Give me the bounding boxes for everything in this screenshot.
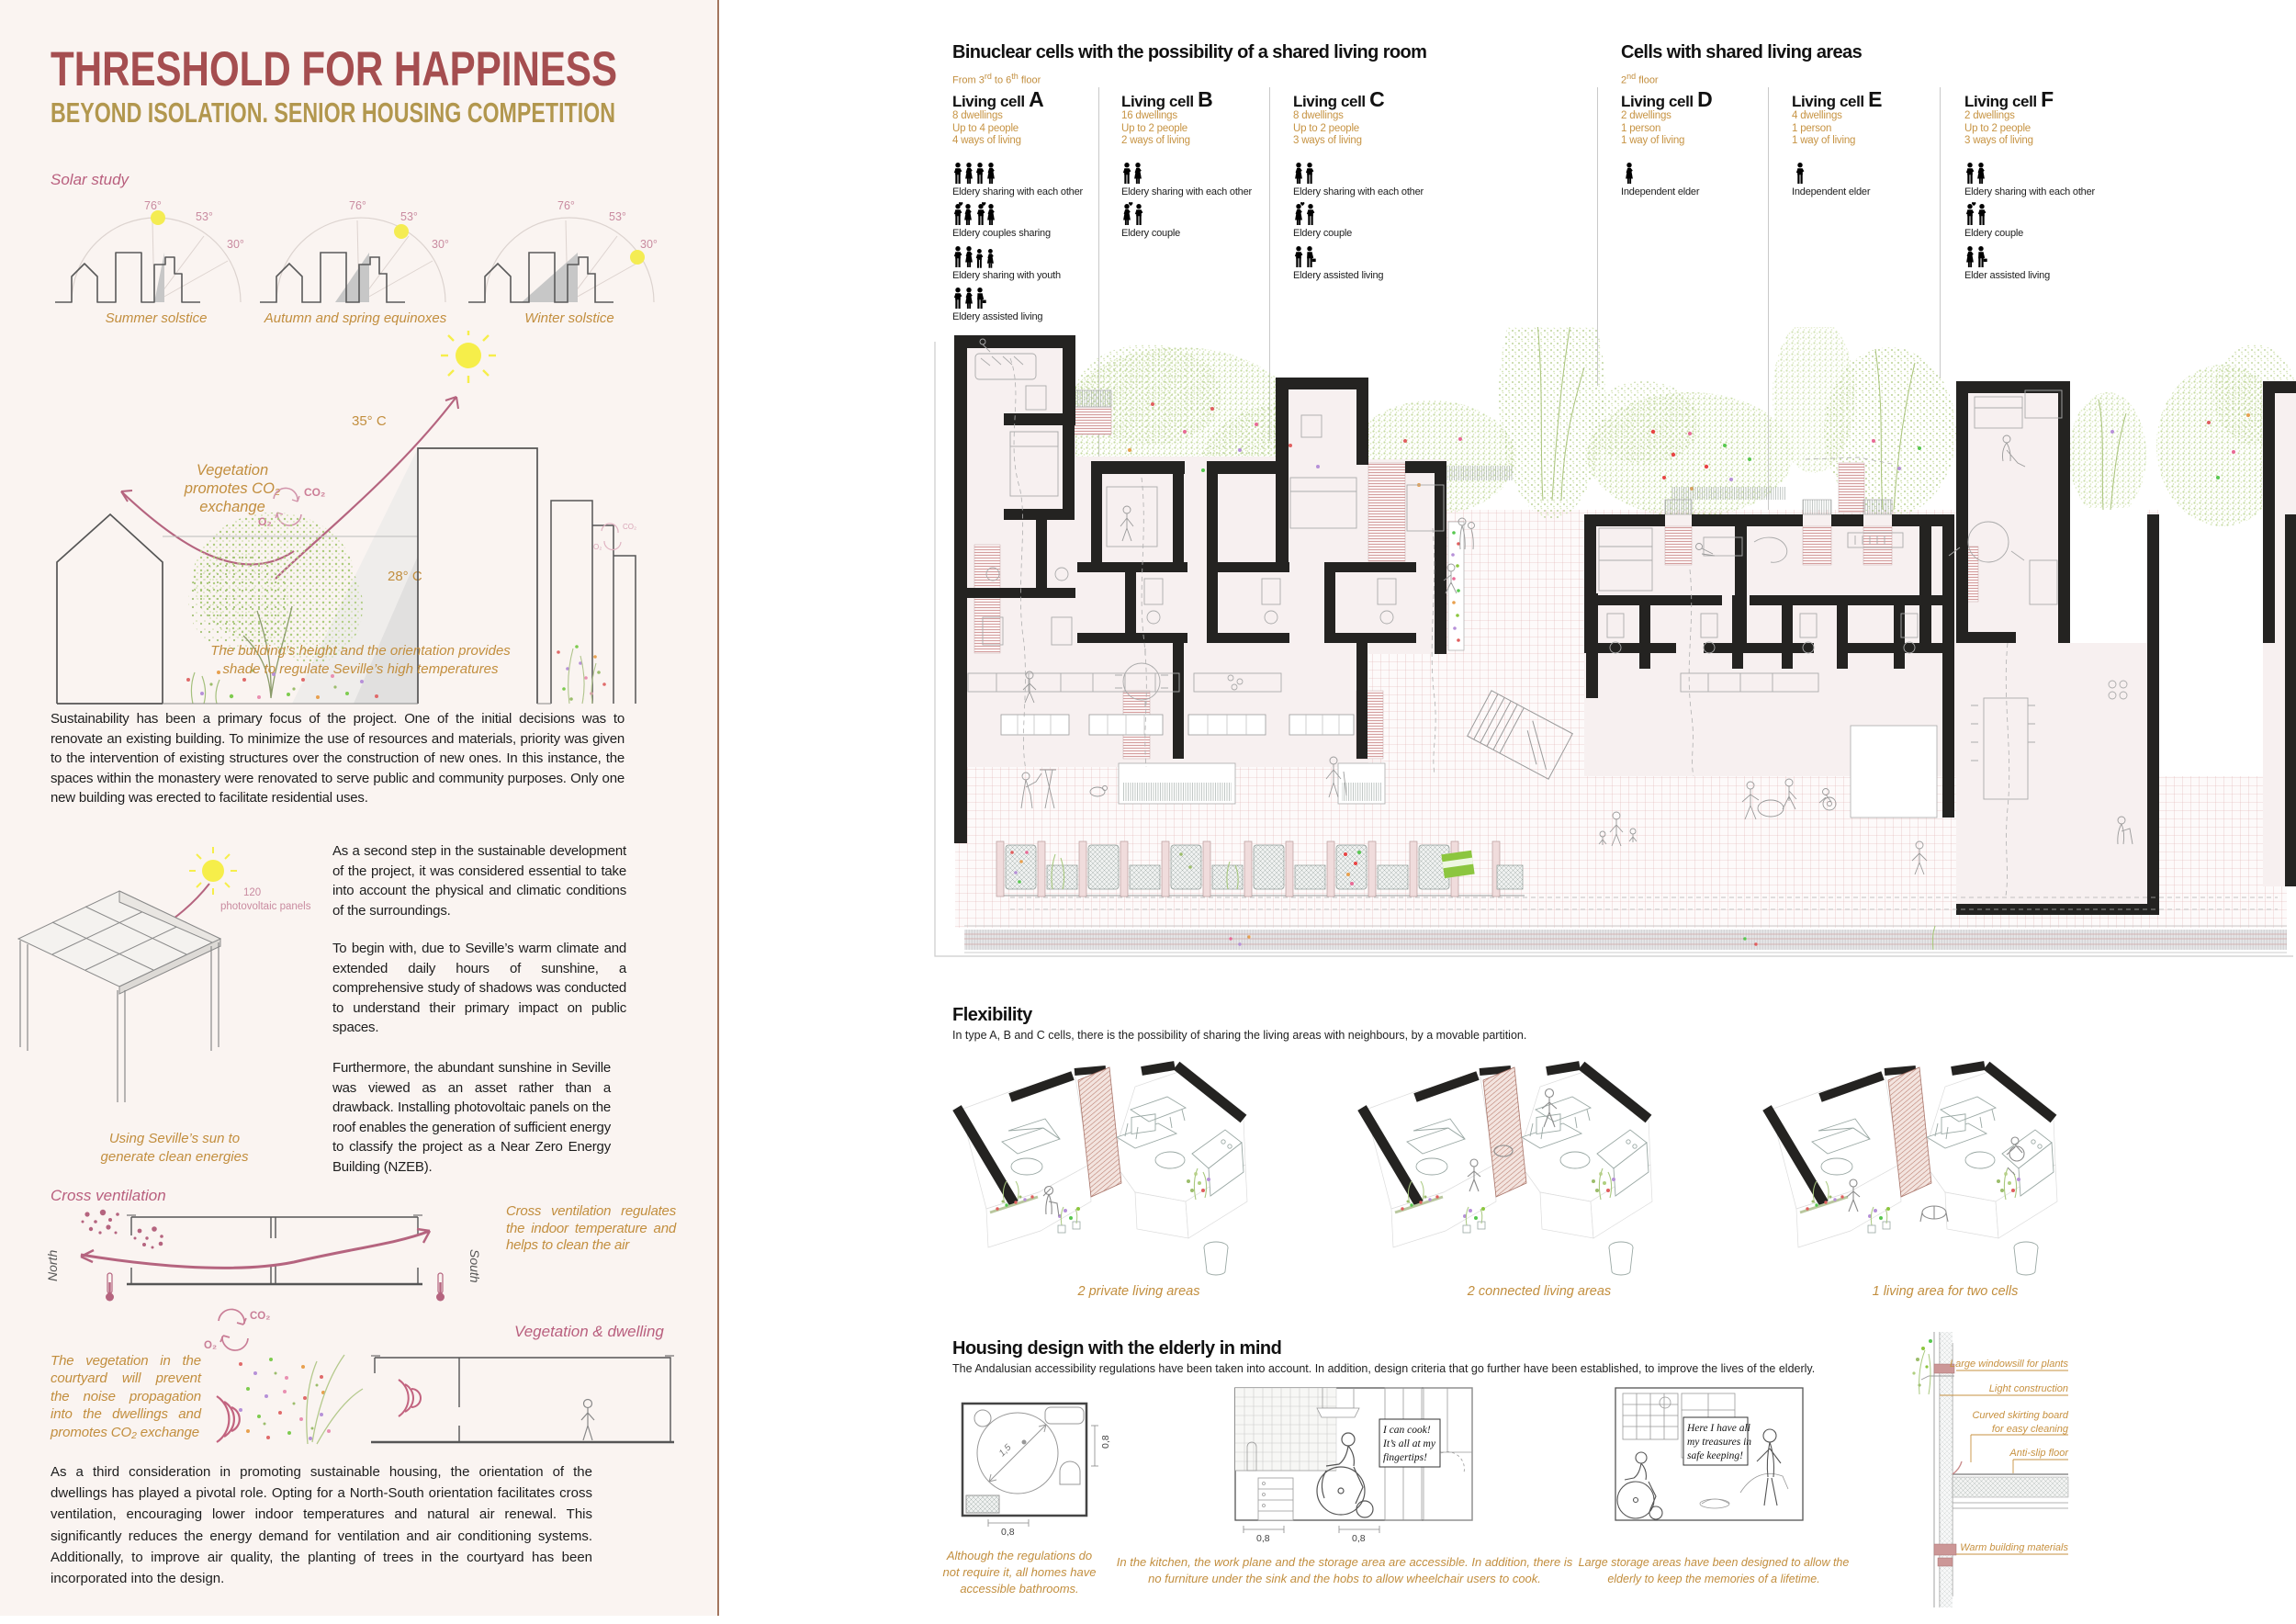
svg-text:76°: 76° xyxy=(557,199,575,212)
svg-text:exchange: exchange xyxy=(199,499,265,515)
svg-text:fingertips!: fingertips! xyxy=(1383,1452,1427,1463)
svg-text:53°: 53° xyxy=(196,210,213,223)
svg-text:53°: 53° xyxy=(609,210,626,223)
svg-text:Warm building materials: Warm building materials xyxy=(1960,1542,2068,1553)
svg-text:my treasures in: my treasures in xyxy=(1687,1437,1751,1448)
svg-text:CO₂: CO₂ xyxy=(304,486,325,499)
svg-text:35° C: 35° C xyxy=(352,413,387,429)
svg-text:Large windowsill for plants: Large windowsill for plants xyxy=(1950,1359,2069,1370)
svg-text:0,8: 0,8 xyxy=(1100,1435,1111,1449)
svg-text:CO₂: CO₂ xyxy=(623,523,636,531)
svg-text:O₂: O₂ xyxy=(593,543,602,551)
svg-text:photovoltaic panels: photovoltaic panels xyxy=(220,901,311,912)
svg-text:76°: 76° xyxy=(144,199,162,212)
svg-text:30°: 30° xyxy=(227,238,244,251)
svg-text:for easy cleaning: for easy cleaning xyxy=(1992,1424,2069,1435)
svg-text:Here I have all: Here I have all xyxy=(1686,1423,1750,1434)
svg-text:53°: 53° xyxy=(400,210,418,223)
svg-text:promotes CO₂: promotes CO₂ xyxy=(184,480,281,497)
svg-text:THRESHOLD FOR HAPPINESS: THRESHOLD FOR HAPPINESS xyxy=(51,42,617,96)
svg-text:CO₂: CO₂ xyxy=(250,1311,270,1322)
svg-text:120: 120 xyxy=(243,887,261,898)
svg-text:Vegetation: Vegetation xyxy=(197,462,268,479)
svg-text:0,8: 0,8 xyxy=(1256,1533,1270,1543)
svg-text:0,8: 0,8 xyxy=(1352,1533,1366,1543)
svg-text:30°: 30° xyxy=(432,238,449,251)
svg-text:Anti-slip floor: Anti-slip floor xyxy=(2009,1448,2069,1459)
svg-text:Light construction: Light construction xyxy=(1989,1383,2068,1394)
svg-text:South: South xyxy=(467,1249,482,1283)
svg-text:Curved skirting board: Curved skirting board xyxy=(1972,1410,2068,1421)
svg-text:North: North xyxy=(45,1250,60,1281)
svg-text:0,8: 0,8 xyxy=(1001,1527,1015,1538)
svg-text:BEYOND ISOLATION. SENIOR HOUSI: BEYOND ISOLATION. SENIOR HOUSING COMPETI… xyxy=(51,96,615,129)
svg-text:I can cook!: I can cook! xyxy=(1382,1425,1431,1436)
svg-text:It’s all at my: It’s all at my xyxy=(1382,1438,1436,1449)
svg-text:76°: 76° xyxy=(349,199,366,212)
svg-text:1,5: 1,5 xyxy=(997,1442,1014,1459)
svg-text:O₂: O₂ xyxy=(204,1340,217,1351)
svg-text:safe keeping!: safe keeping! xyxy=(1687,1450,1743,1461)
svg-text:30°: 30° xyxy=(640,238,658,251)
